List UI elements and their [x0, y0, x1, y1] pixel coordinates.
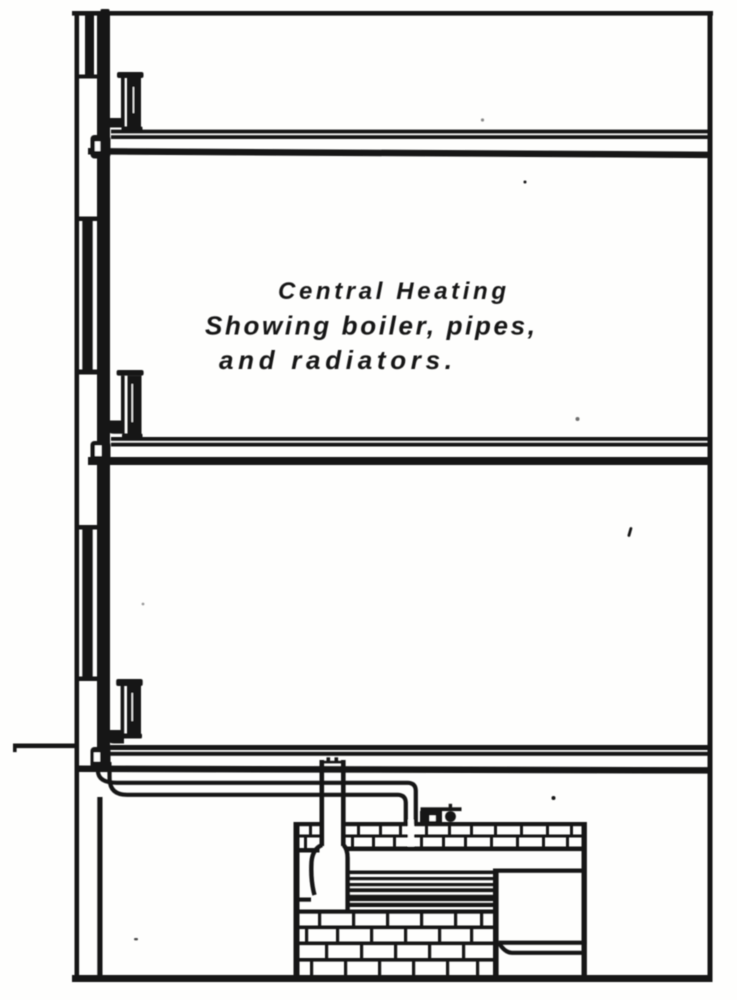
svg-text:Central Heating: Central Heating: [278, 278, 506, 305]
svg-text:and radiators.: and radiators.: [219, 345, 452, 375]
svg-text:Showing boiler, pipes,: Showing boiler, pipes,: [205, 311, 535, 341]
